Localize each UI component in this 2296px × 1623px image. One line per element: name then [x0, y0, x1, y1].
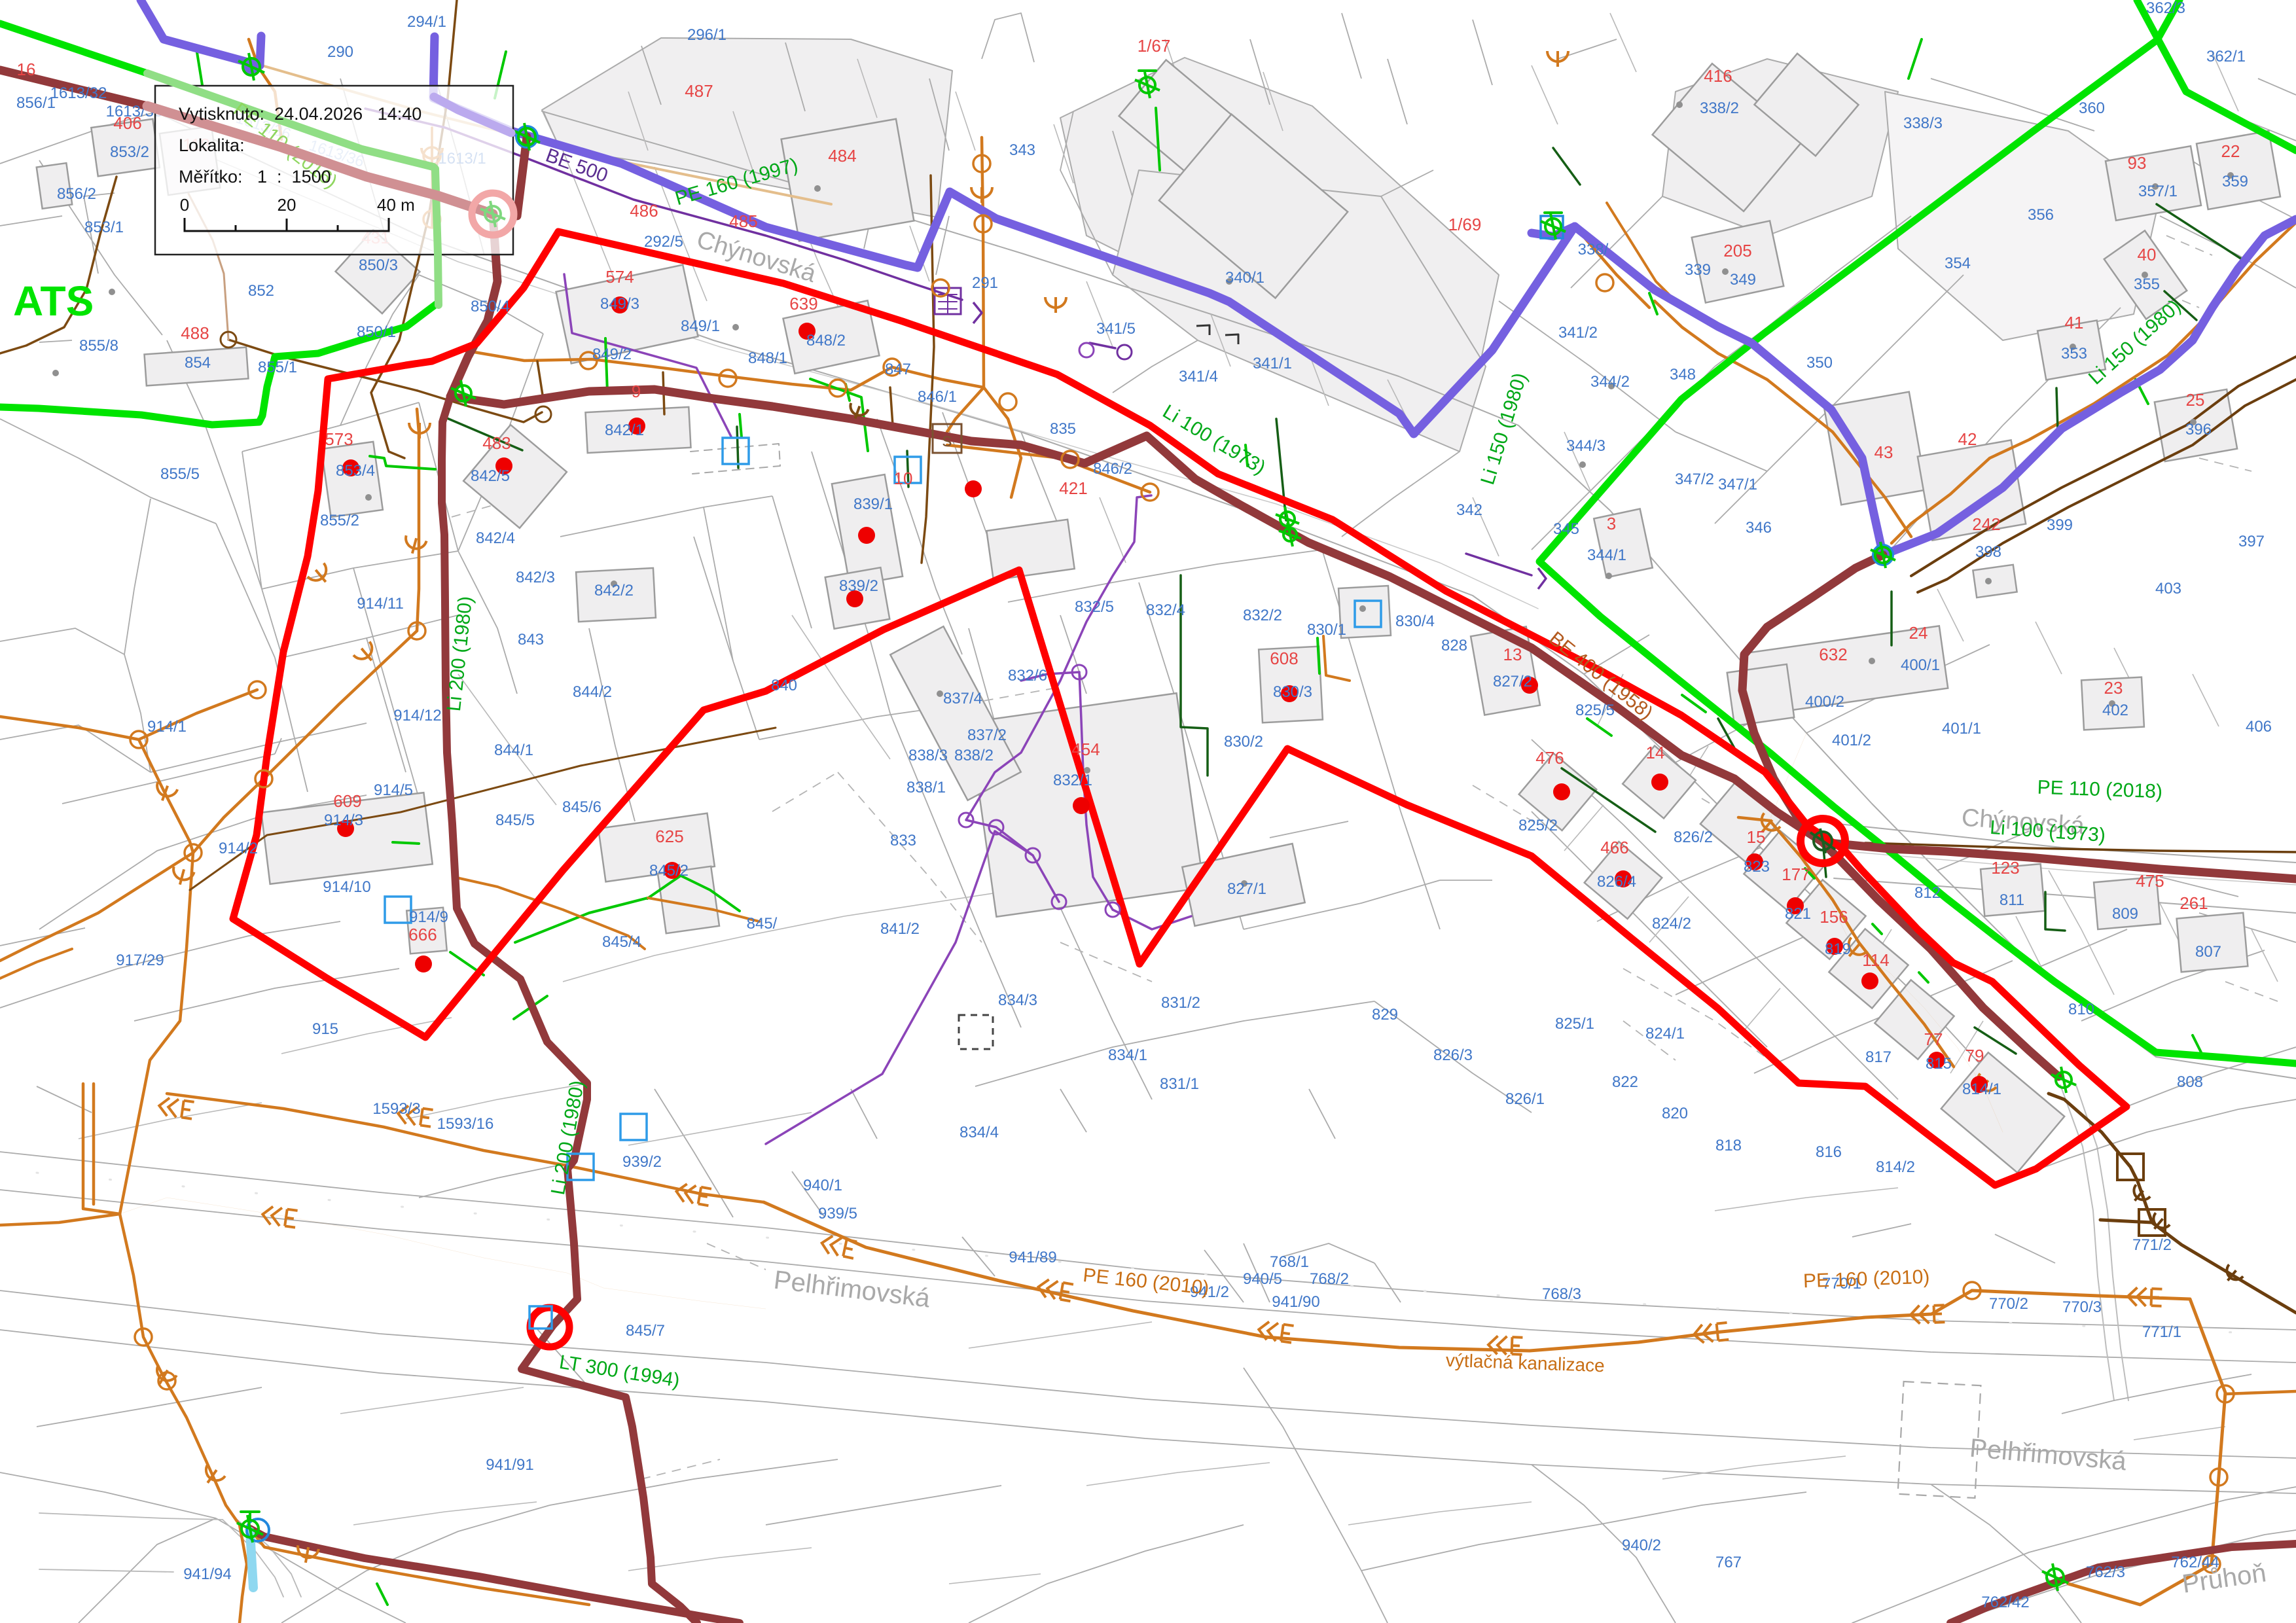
svg-text:347/2: 347/2 [1675, 471, 1714, 488]
svg-text:466: 466 [1600, 838, 1628, 857]
svg-text:639: 639 [789, 294, 817, 313]
svg-text:840: 840 [771, 677, 797, 694]
svg-text:826/1: 826/1 [1505, 1090, 1545, 1108]
svg-text:811: 811 [2000, 891, 2024, 909]
svg-text:349: 349 [1730, 271, 1756, 289]
svg-text:807: 807 [2195, 943, 2221, 961]
svg-text:828: 828 [1441, 637, 1467, 654]
svg-text:855/1: 855/1 [258, 359, 297, 376]
svg-text:156: 156 [1820, 907, 1848, 927]
svg-text:842/5: 842/5 [471, 467, 510, 485]
svg-text:25: 25 [2186, 390, 2205, 410]
svg-text:1593/3: 1593/3 [372, 1100, 420, 1118]
svg-text:294/1: 294/1 [407, 13, 446, 31]
svg-text:483: 483 [482, 433, 511, 453]
svg-text:0: 0 [180, 195, 189, 215]
svg-text:Měřítko: 1 : 1500: Měřítko: 1 : 1500 [179, 167, 331, 187]
svg-text:914/2: 914/2 [219, 840, 258, 857]
svg-text:344/1: 344/1 [1587, 546, 1626, 564]
svg-text:23: 23 [2104, 678, 2123, 698]
svg-text:841/2: 841/2 [880, 920, 920, 938]
svg-text:338/: 338/ [1578, 241, 1609, 259]
svg-text:832/1: 832/1 [1053, 772, 1092, 789]
svg-text:831/2: 831/2 [1161, 994, 1200, 1012]
svg-text:914/5: 914/5 [374, 781, 413, 799]
svg-text:771/2: 771/2 [2132, 1236, 2172, 1254]
svg-text:822: 822 [1612, 1073, 1638, 1091]
svg-text:14: 14 [1646, 743, 1665, 762]
svg-text:609: 609 [333, 791, 361, 811]
svg-text:856/1: 856/1 [16, 94, 56, 112]
svg-text:291: 291 [972, 274, 998, 292]
svg-text:476: 476 [1535, 748, 1564, 768]
svg-text:941/91: 941/91 [486, 1456, 533, 1474]
svg-text:341/4: 341/4 [1179, 368, 1218, 385]
svg-text:844/1: 844/1 [494, 741, 533, 759]
svg-text:940/1: 940/1 [803, 1177, 842, 1194]
svg-text:20: 20 [278, 195, 296, 215]
svg-text:826/3: 826/3 [1433, 1046, 1473, 1064]
svg-text:914/12: 914/12 [393, 707, 441, 724]
svg-text:848/2: 848/2 [806, 332, 846, 349]
svg-text:830/1: 830/1 [1307, 621, 1346, 639]
svg-text:855/2: 855/2 [320, 512, 359, 529]
svg-text:354: 354 [1945, 255, 1971, 272]
svg-text:362/3: 362/3 [2146, 0, 2185, 17]
svg-text:ATS: ATS [13, 277, 94, 325]
svg-text:359: 359 [2222, 173, 2248, 190]
svg-text:344/2: 344/2 [1590, 373, 1630, 391]
svg-text:829: 829 [1372, 1006, 1398, 1024]
svg-text:832/5: 832/5 [1075, 598, 1114, 616]
svg-text:353: 353 [2061, 345, 2087, 363]
svg-text:843: 843 [518, 631, 544, 649]
svg-text:830/2: 830/2 [1224, 733, 1263, 751]
svg-text:814/1: 814/1 [1962, 1080, 2001, 1098]
svg-text:770/2: 770/2 [1989, 1295, 2028, 1313]
svg-text:846/1: 846/1 [918, 388, 957, 406]
svg-text:338/2: 338/2 [1700, 99, 1739, 117]
svg-text:827/1: 827/1 [1227, 880, 1266, 898]
svg-text:812: 812 [1914, 884, 1941, 902]
svg-text:939/2: 939/2 [622, 1153, 662, 1171]
svg-text:488: 488 [181, 323, 209, 343]
svg-text:847: 847 [885, 361, 911, 378]
svg-text:838/1: 838/1 [906, 779, 946, 796]
svg-text:Lokalita:: Lokalita: [179, 135, 245, 155]
svg-text:762/3: 762/3 [2086, 1563, 2125, 1581]
svg-text:343: 343 [1009, 141, 1035, 159]
svg-text:839/1: 839/1 [853, 495, 893, 513]
svg-text:43: 43 [1874, 442, 1893, 462]
svg-text:242: 242 [1972, 514, 2000, 534]
svg-text:341/2: 341/2 [1558, 324, 1598, 342]
svg-text:350: 350 [1806, 354, 1833, 372]
svg-text:41: 41 [2065, 313, 2084, 332]
svg-text:346: 346 [1746, 519, 1772, 537]
svg-text:848/1: 848/1 [748, 349, 787, 367]
svg-text:842/2: 842/2 [594, 582, 634, 599]
svg-text:845/7: 845/7 [626, 1322, 665, 1340]
svg-text:914/9: 914/9 [409, 908, 448, 926]
svg-text:771/1: 771/1 [2142, 1323, 2181, 1341]
svg-text:77: 77 [1924, 1029, 1943, 1049]
svg-text:845/: 845/ [747, 915, 778, 933]
svg-text:s: s [942, 429, 952, 451]
svg-text:832/6: 832/6 [1008, 667, 1047, 685]
svg-text:809: 809 [2112, 905, 2138, 923]
svg-text:401/1: 401/1 [1942, 720, 1981, 738]
svg-text:608: 608 [1270, 649, 1298, 668]
svg-text:833: 833 [890, 832, 916, 849]
svg-text:831/1: 831/1 [1160, 1075, 1199, 1093]
svg-text:768/3: 768/3 [1542, 1285, 1581, 1303]
svg-text:823: 823 [1744, 858, 1770, 876]
svg-text:838/2: 838/2 [954, 747, 994, 764]
svg-text:416: 416 [1704, 66, 1732, 86]
svg-text:397: 397 [2238, 533, 2265, 550]
svg-text:362/1: 362/1 [2206, 48, 2246, 65]
svg-text:941/90: 941/90 [1272, 1293, 1319, 1311]
svg-text:486: 486 [630, 201, 658, 221]
svg-text:114: 114 [1862, 950, 1889, 970]
svg-text:824/1: 824/1 [1645, 1025, 1685, 1043]
svg-text:406: 406 [2246, 718, 2272, 736]
svg-text:342: 342 [1456, 501, 1482, 519]
svg-text:573: 573 [325, 429, 353, 449]
svg-text:939/5: 939/5 [818, 1205, 857, 1222]
svg-text:914/11: 914/11 [357, 595, 404, 613]
svg-text:PE 110 (2018): PE 110 (2018) [2037, 777, 2162, 803]
svg-text:826/2: 826/2 [1674, 829, 1713, 846]
svg-text:849/3: 849/3 [600, 295, 639, 313]
svg-text:355: 355 [2134, 276, 2160, 293]
svg-text:849/2: 849/2 [592, 346, 632, 363]
svg-text:854: 854 [185, 354, 211, 372]
svg-text:356: 356 [2028, 206, 2054, 224]
svg-text:855/8: 855/8 [79, 337, 118, 355]
svg-text:834/3: 834/3 [998, 991, 1037, 1009]
svg-text:832/2: 832/2 [1243, 607, 1282, 624]
svg-text:1/67: 1/67 [1138, 36, 1171, 56]
svg-text:855/5: 855/5 [160, 465, 200, 483]
svg-text:825/5: 825/5 [1575, 702, 1615, 719]
svg-text:914/3: 914/3 [324, 811, 363, 829]
svg-text:767: 767 [1715, 1554, 1742, 1571]
svg-text:345: 345 [1553, 520, 1579, 538]
svg-text:400/2: 400/2 [1805, 693, 1844, 711]
svg-text:261: 261 [2179, 893, 2208, 913]
svg-text:770/3: 770/3 [2062, 1298, 2102, 1316]
svg-text:850/1: 850/1 [357, 323, 396, 341]
svg-text:821: 821 [1785, 905, 1811, 923]
svg-text:344/3: 344/3 [1566, 437, 1605, 455]
svg-text:808: 808 [2177, 1073, 2203, 1091]
svg-text:941/94: 941/94 [183, 1565, 231, 1583]
svg-text:844/2: 844/2 [573, 683, 612, 701]
svg-text:850/4: 850/4 [471, 298, 510, 315]
svg-text:834/4: 834/4 [960, 1124, 999, 1141]
svg-text:940/2: 940/2 [1622, 1537, 1661, 1554]
svg-text:292/5: 292/5 [644, 233, 683, 251]
svg-text:347/1: 347/1 [1718, 476, 1757, 493]
svg-text:123: 123 [1991, 858, 2019, 878]
svg-text:340/1: 340/1 [1225, 269, 1265, 287]
svg-text:832/4: 832/4 [1146, 601, 1185, 619]
svg-text:40: 40 [2138, 245, 2157, 264]
svg-text:487: 487 [685, 81, 713, 101]
svg-text:16: 16 [17, 60, 36, 79]
svg-text:849/1: 849/1 [681, 317, 720, 335]
svg-text:PE 160 (2010): PE 160 (2010) [1803, 1266, 1930, 1293]
svg-text:835: 835 [1050, 420, 1076, 438]
svg-text:837/4: 837/4 [943, 690, 982, 707]
svg-text:825/2: 825/2 [1518, 817, 1558, 834]
svg-text:914/10: 914/10 [323, 878, 370, 896]
svg-text:815: 815 [1926, 1055, 1952, 1073]
svg-text:830/3: 830/3 [1273, 683, 1312, 701]
svg-text:853/1: 853/1 [84, 219, 124, 236]
svg-text:625: 625 [655, 827, 683, 846]
svg-text:341/1: 341/1 [1253, 355, 1292, 372]
svg-text:846/2: 846/2 [1093, 460, 1132, 478]
svg-text:842/1: 842/1 [605, 421, 644, 439]
svg-text:338/3: 338/3 [1903, 115, 1943, 132]
svg-text:818: 818 [1715, 1137, 1742, 1154]
svg-text:348: 348 [1670, 366, 1696, 383]
svg-text:917/29: 917/29 [116, 952, 164, 969]
svg-text:762/42: 762/42 [1981, 1594, 2029, 1611]
svg-text:24: 24 [1909, 623, 1928, 643]
svg-text:454: 454 [1071, 740, 1100, 759]
svg-text:827/2: 827/2 [1493, 673, 1532, 690]
svg-text:42: 42 [1958, 429, 1977, 449]
svg-text:421: 421 [1059, 478, 1087, 498]
svg-text:830/4: 830/4 [1395, 613, 1435, 630]
svg-text:856/2: 856/2 [57, 185, 96, 203]
svg-text:402: 402 [2102, 702, 2128, 719]
svg-text:826/4: 826/4 [1597, 873, 1636, 891]
svg-text:574: 574 [605, 267, 634, 287]
svg-text:838/3: 838/3 [908, 747, 948, 764]
svg-text:475: 475 [2136, 871, 2164, 891]
svg-text:396: 396 [2185, 421, 2212, 438]
svg-text:296/1: 296/1 [687, 26, 726, 44]
svg-text:845/6: 845/6 [562, 798, 601, 816]
svg-text:401/2: 401/2 [1832, 732, 1871, 749]
svg-text:845/4: 845/4 [602, 933, 641, 951]
svg-text:837/2: 837/2 [967, 726, 1007, 744]
svg-text:484: 484 [828, 146, 856, 166]
svg-text:40 m: 40 m [377, 195, 415, 215]
svg-text:399: 399 [2047, 516, 2073, 534]
svg-text:819: 819 [1825, 940, 1851, 958]
svg-text:3: 3 [1607, 514, 1616, 533]
svg-text:632: 632 [1819, 645, 1847, 664]
svg-text:398: 398 [1975, 543, 2001, 561]
svg-text:1/69: 1/69 [1448, 215, 1482, 234]
svg-text:817: 817 [1865, 1048, 1892, 1066]
svg-text:290: 290 [327, 43, 353, 61]
svg-text:810: 810 [2068, 1001, 2094, 1018]
svg-text:1613/32: 1613/32 [50, 84, 107, 102]
svg-text:941/89: 941/89 [1009, 1249, 1056, 1266]
svg-text:768/1: 768/1 [1270, 1253, 1309, 1271]
svg-text:768/2: 768/2 [1310, 1270, 1349, 1288]
svg-text:9: 9 [632, 382, 641, 401]
svg-text:339: 339 [1685, 261, 1711, 279]
svg-text:Vytisknuto: 24.04.2026 14:4: Vytisknuto: 24.04.2026 14:40 [179, 104, 422, 124]
svg-text:406: 406 [113, 113, 141, 133]
svg-text:842/3: 842/3 [516, 569, 555, 586]
svg-text:22: 22 [2221, 141, 2240, 161]
svg-text:15: 15 [1747, 827, 1766, 847]
svg-text:914/1: 914/1 [147, 718, 187, 736]
svg-text:940/5: 940/5 [1243, 1270, 1282, 1288]
svg-text:853/2: 853/2 [110, 143, 149, 161]
svg-text:839/2: 839/2 [839, 577, 878, 595]
svg-text:357/1: 357/1 [2138, 183, 2178, 200]
svg-text:834/1: 834/1 [1108, 1046, 1147, 1064]
svg-text:10: 10 [894, 469, 913, 488]
svg-text:915: 915 [312, 1020, 338, 1038]
svg-text:816: 816 [1816, 1143, 1842, 1161]
svg-text:825/1: 825/1 [1555, 1015, 1594, 1033]
svg-text:845/2: 845/2 [649, 862, 689, 880]
svg-text:853/4: 853/4 [336, 462, 375, 480]
svg-text:93: 93 [2128, 153, 2147, 173]
svg-text:824/2: 824/2 [1652, 915, 1691, 933]
svg-text:360: 360 [2079, 99, 2105, 117]
svg-text:820: 820 [1662, 1105, 1688, 1122]
svg-text:666: 666 [408, 925, 437, 944]
svg-text:13: 13 [1503, 645, 1522, 664]
svg-text:845/5: 845/5 [495, 811, 535, 829]
svg-text:1593/16: 1593/16 [437, 1115, 494, 1133]
svg-text:205: 205 [1723, 241, 1751, 260]
svg-text:850/3: 850/3 [359, 257, 398, 274]
svg-text:177: 177 [1782, 865, 1810, 884]
svg-text:403: 403 [2155, 580, 2181, 597]
svg-text:485: 485 [729, 211, 757, 231]
svg-text:814/2: 814/2 [1876, 1158, 1915, 1176]
svg-text:341/5: 341/5 [1096, 320, 1136, 338]
svg-text:79: 79 [1965, 1046, 1984, 1065]
svg-text:400/1: 400/1 [1901, 656, 1940, 674]
svg-text:842/4: 842/4 [476, 529, 515, 547]
svg-text:852: 852 [248, 282, 274, 300]
